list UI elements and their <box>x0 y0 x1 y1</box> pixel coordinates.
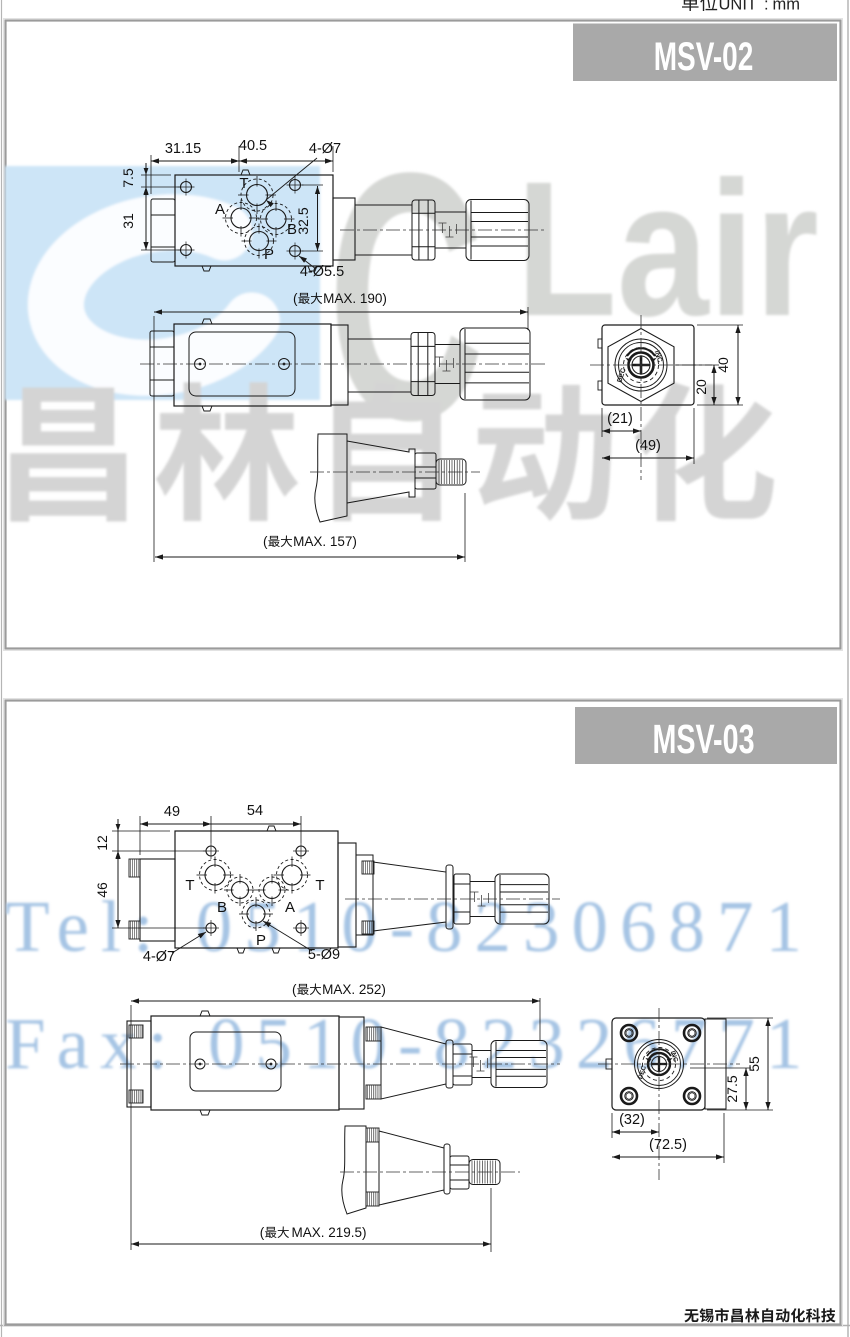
svg-text:(: ( <box>260 1225 265 1240</box>
svg-text:32.5: 32.5 <box>295 207 311 234</box>
svg-text:MAX. 157): MAX. 157) <box>293 534 357 549</box>
svg-text:40.5: 40.5 <box>239 138 267 154</box>
svg-text:A: A <box>285 899 295 916</box>
svg-text:T: T <box>239 175 248 192</box>
svg-text:T: T <box>315 877 324 894</box>
svg-text:31.15: 31.15 <box>165 141 201 157</box>
svg-text:Lair: Lair <box>516 141 819 355</box>
svg-text:4-Ø7: 4-Ø7 <box>309 141 341 157</box>
svg-text:27.5: 27.5 <box>724 1075 740 1102</box>
svg-text:MSV-03: MSV-03 <box>652 717 754 762</box>
svg-text::: : <box>764 0 769 14</box>
svg-text:B: B <box>217 899 227 916</box>
svg-text:5-Ø9: 5-Ø9 <box>308 947 340 963</box>
svg-text:A: A <box>215 201 225 218</box>
svg-text:(49): (49) <box>635 438 661 454</box>
svg-text:Fax: 0510-82326771: Fax: 0510-82326771 <box>5 1003 813 1084</box>
svg-text:mm: mm <box>773 0 801 14</box>
svg-text:T: T <box>185 877 194 894</box>
svg-text:4-Ø7: 4-Ø7 <box>143 949 175 965</box>
svg-text:(: ( <box>263 534 268 549</box>
svg-text:55: 55 <box>746 1056 762 1072</box>
svg-text:46: 46 <box>94 882 110 898</box>
svg-text:20: 20 <box>693 379 709 395</box>
svg-text:MAX. 190): MAX. 190) <box>323 291 387 306</box>
svg-text:(32): (32) <box>619 1112 645 1128</box>
svg-text:(21): (21) <box>607 411 633 427</box>
svg-text:MAX. 219.5): MAX. 219.5) <box>291 1225 366 1240</box>
svg-text:54: 54 <box>247 803 263 819</box>
svg-text:UNIT: UNIT <box>719 0 758 14</box>
svg-text:MAX. 252): MAX. 252) <box>322 982 386 997</box>
svg-text:7.5: 7.5 <box>120 168 136 188</box>
svg-text:31: 31 <box>120 213 136 229</box>
svg-text:12: 12 <box>94 835 110 851</box>
svg-text:(72.5): (72.5) <box>649 1137 687 1153</box>
svg-text:P: P <box>264 246 274 263</box>
svg-text:MSV-02: MSV-02 <box>654 35 754 79</box>
svg-text:4-Ø5.5: 4-Ø5.5 <box>300 264 344 280</box>
svg-text:(: ( <box>292 982 297 997</box>
svg-text:P: P <box>256 932 266 949</box>
svg-text:49: 49 <box>164 804 180 820</box>
svg-text:(: ( <box>293 291 298 306</box>
